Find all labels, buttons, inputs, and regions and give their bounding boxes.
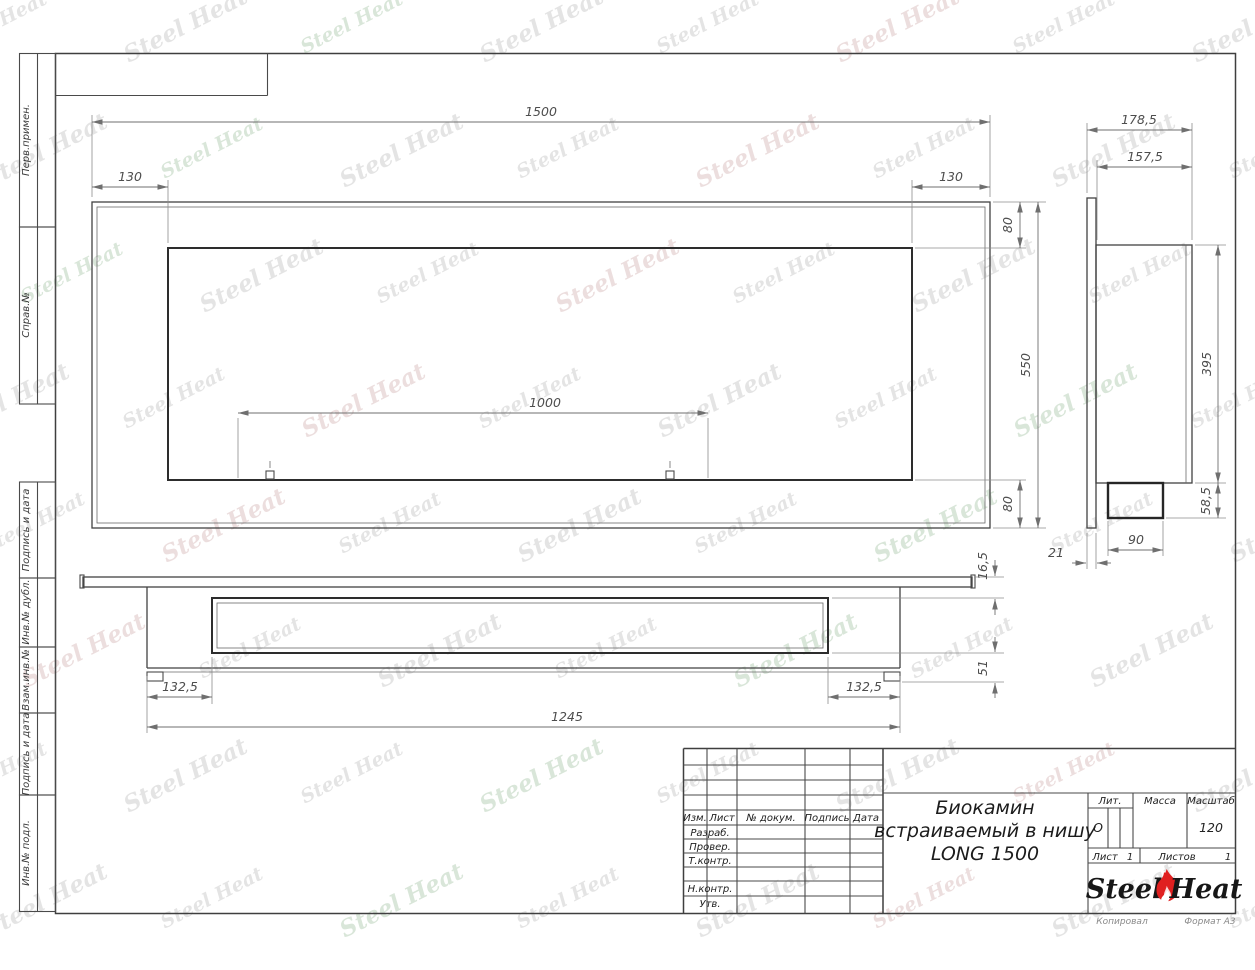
dim-bottom-length: 1245	[551, 709, 583, 724]
tb-row-prover: Провер.	[689, 842, 731, 853]
dim-front-inner: 1000	[529, 395, 561, 410]
dim-side-box: 90	[1128, 532, 1144, 547]
tb-lit-label: Лит.	[1097, 796, 1121, 807]
tb-row-nkontr: Н.контр.	[688, 884, 733, 895]
drawing-page: Steel HeatSteel HeatSteel HeatSteel Heat…	[0, 0, 1255, 970]
dim-bottom-lip: 16,5	[975, 552, 990, 580]
front-view	[92, 202, 990, 528]
clip-left	[266, 471, 274, 479]
dim-side-overall: 178,5	[1121, 112, 1157, 127]
dim-side-inner: 157,5	[1127, 149, 1163, 164]
tb-mass-label: Масса	[1144, 796, 1176, 807]
margin-label-perv: Перв.примен.	[21, 104, 32, 176]
tb-sheets-label: Листов	[1157, 852, 1195, 863]
tb-col-doc: № докум.	[745, 813, 795, 824]
dim-front-overall: 1500	[525, 104, 557, 119]
tb-col-izm: Изм.	[683, 813, 707, 824]
side-body	[1096, 245, 1192, 483]
tb-sheets-value: 1	[1225, 852, 1231, 863]
tb-row-utv: Утв.	[700, 899, 721, 910]
burner-opening	[212, 598, 828, 653]
dimensions-side: 178,5 157,5 395 58,5 90 21	[1048, 112, 1226, 569]
tb-sheet-label: Лист	[1091, 852, 1119, 863]
title-line-3: LONG 1500	[931, 843, 1039, 865]
side-view	[1087, 198, 1192, 528]
logo-steel-text: Steel	[1086, 874, 1163, 905]
foot-right	[884, 672, 900, 681]
dim-bottom-depth: 51	[975, 660, 990, 676]
dim-bottom-left: 132,5	[162, 679, 198, 694]
margin-labels: Перв.примен. Справ.№ Подпись и дата Инв.…	[20, 104, 32, 886]
tb-scale-label: Масштаб	[1187, 795, 1235, 807]
front-lip	[83, 577, 972, 587]
front-flange	[1087, 198, 1096, 528]
margin-label-inv-podl: Инв.№ подл.	[21, 820, 32, 886]
title-block: Изм. Лист № докум. Подпись Дата Разраб. …	[683, 749, 1243, 928]
dim-side-height: 395	[1199, 352, 1214, 376]
dimensions-bottom: 16,5 51 132,5 132,5 1245	[147, 552, 1004, 733]
tb-scale-value: 120	[1199, 820, 1223, 835]
dim-side-lower: 58,5	[1198, 487, 1213, 515]
margin-label-sprav: Справ.№	[21, 292, 32, 337]
dim-bottom-right: 132,5	[846, 679, 882, 694]
dim-front-bottom: 80	[1000, 496, 1015, 512]
title-line-1: Биокамин	[935, 797, 1034, 819]
dim-front-height: 550	[1018, 353, 1033, 377]
dim-side-wall: 21	[1048, 545, 1064, 560]
dimensions-front: 1500 130 130 80 550 80 1000	[92, 104, 1046, 528]
margin-label-inv-dubl: Инв.№ дубл.	[20, 579, 32, 644]
tb-col-list: Лист	[708, 813, 736, 824]
document-title: Биокамин встраиваемый в нишу LONG 1500	[874, 797, 1096, 865]
bottom-view	[80, 575, 975, 681]
logo-heat-text: Heat	[1169, 874, 1243, 905]
steelheat-logo: Steel Heat	[1086, 869, 1243, 905]
dim-front-right: 130	[939, 169, 963, 184]
tb-row-razrab: Разраб.	[690, 827, 729, 839]
burner-box	[1108, 483, 1163, 518]
technical-drawing: Перв.примен. Справ.№ Подпись и дата Инв.…	[0, 0, 1255, 970]
footer-format: Формат А3	[1184, 917, 1236, 927]
tb-col-sign: Подпись	[805, 813, 850, 824]
tb-sheet-value: 1	[1127, 852, 1133, 863]
sheet-frame: Перв.примен. Справ.№ Подпись и дата Инв.…	[20, 54, 1236, 914]
clip-right	[666, 471, 674, 479]
margin-label-podpis2: Подпись и дата	[21, 713, 32, 796]
margin-label-vzam: Взам.инв.№	[21, 649, 32, 711]
dim-front-top: 80	[1000, 217, 1015, 233]
tb-row-tkontr: Т.контр.	[688, 856, 731, 867]
margin-label-podpis1: Подпись и дата	[21, 489, 32, 572]
foot-left	[147, 672, 163, 681]
dim-front-left: 130	[118, 169, 142, 184]
title-line-2: встраиваемый в нишу	[874, 820, 1096, 842]
footer-kopiroval: Копировал	[1096, 917, 1148, 927]
